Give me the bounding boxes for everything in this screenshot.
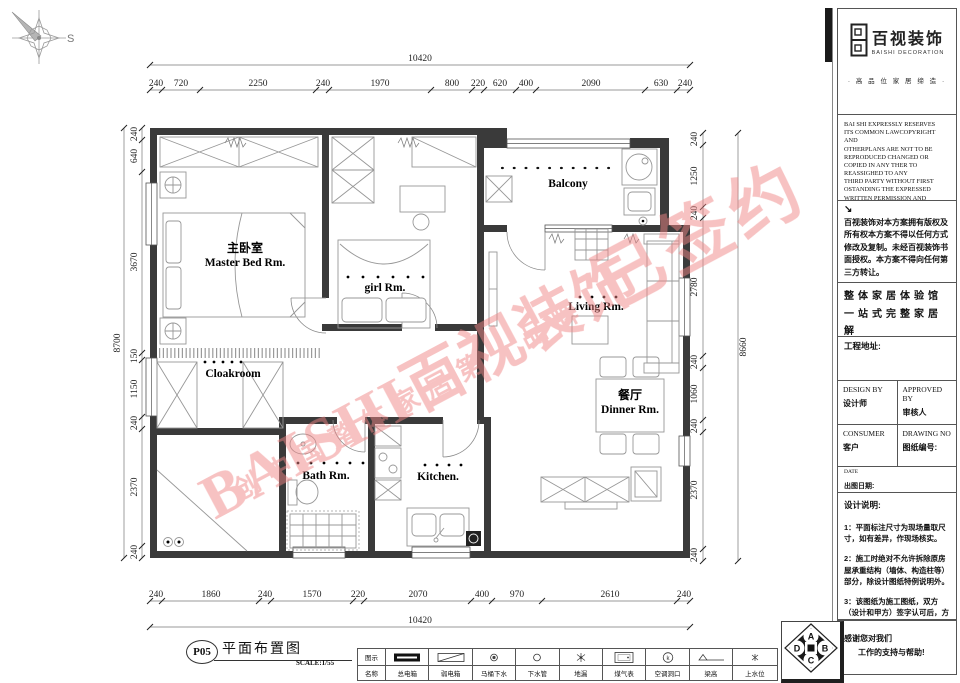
design-note-2: 2：施工时绝对不允许拆除原房屋承重结构（墙体、构造柱等）部分，除设计图纸特例说明…: [844, 553, 950, 587]
company-name-en: BAISHI DECORATION: [872, 50, 945, 56]
approved-by-label-en: APPROVED BY: [903, 385, 952, 403]
dim-label: 240: [677, 590, 692, 600]
dim-label: 1060: [690, 384, 700, 403]
diamond-letter-d: D: [794, 644, 801, 654]
dim-label: 240: [690, 419, 700, 434]
svg-text:k: k: [666, 656, 670, 662]
floor-drain-icon: [560, 649, 603, 666]
dim-label: 240: [690, 355, 700, 370]
approved-by-cell: APPROVED BY 审核人: [897, 381, 957, 424]
title-block: 百视装饰 BAISHI DECORATION · 高 品 位 家 居 缔 造 ·…: [837, 8, 957, 675]
dim-label: 220: [351, 590, 366, 600]
dim-label: 150: [130, 349, 140, 364]
dim-label: 8700: [113, 333, 123, 352]
date-label-zh: 出图日期:: [844, 483, 874, 490]
compass-rose-icon: S: [12, 10, 74, 64]
floor-plan-drawing: S 10420 240 720 2250 240 1970 800 220 62…: [0, 0, 836, 648]
dim-label: 1970: [371, 79, 390, 89]
approved-by-label-zh: 审核人: [903, 407, 952, 418]
legend-table: 图示 k 名称 总电箱 弱电箱 马桶下水 下水管 地漏 煤气表 空调洞口 梁高 …: [357, 648, 778, 681]
diamond-letter-a: A: [808, 632, 815, 642]
dim-label: 1860: [202, 590, 221, 600]
legend-name: 煤气表: [603, 666, 646, 680]
signed-watermark: BAISHI百视装饰 已签约 创中国整体家居第一品牌: [189, 148, 819, 532]
consumer-label-zh: 客户: [843, 442, 892, 453]
design-approved-row: DESIGN BY 设计师 APPROVED BY 审核人: [838, 381, 956, 425]
design-note-3: 3：该图纸为施工图纸，双方（设计和甲方）签字认可后，方可作为施工依据。: [844, 596, 950, 620]
dim-label: 970: [510, 590, 525, 600]
diamond-letter-c: C: [808, 656, 815, 666]
dim-label: 240: [130, 416, 140, 431]
copyright-notice-zh: ↘ 百视装饰对本方案拥有版权及所有权本方案不得以任何方式修改及复制。未经百视装饰…: [838, 201, 956, 283]
date-label-en: DATE: [844, 469, 950, 475]
dim-label: 240: [690, 132, 700, 147]
panel-divider-line: [832, 8, 833, 675]
dim-label: 10420: [408, 616, 432, 626]
dim-label: 640: [130, 149, 140, 164]
legend-name: 马桶下水: [473, 666, 516, 680]
thanks-line-2: 工作的支持与帮助!: [858, 647, 950, 658]
room-label-balcony: Balcony: [548, 178, 588, 190]
dim-label: 400: [519, 79, 534, 89]
main-power-box-icon: [386, 649, 429, 666]
quality-diamond-mark: A B C D: [781, 621, 844, 683]
sheet-title: 平面布置图: [214, 638, 352, 658]
copyright-notice-en: BAI SHI EXPRESSLY RESERVES ITS COMMON LA…: [838, 115, 956, 201]
dim-label: 630: [654, 79, 669, 89]
design-note-1: 1：平面标注尺寸为现场量取尺寸，如有差异，作现场核实。: [844, 522, 950, 545]
dim-label: 2370: [690, 480, 700, 499]
dim-label: 800: [445, 79, 460, 89]
company-slogan: 整体家居体验馆 一站式完整家居解 决方案: [838, 283, 956, 337]
dim-label: 2370: [130, 477, 140, 496]
toilet-drain-icon: [473, 649, 516, 666]
company-logo-block: 百视装饰 BAISHI DECORATION · 高 品 位 家 居 缔 造 ·: [838, 9, 956, 115]
room-label-kitchen: Kitchen.: [417, 471, 459, 483]
design-by-label-en: DESIGN BY: [843, 385, 892, 394]
dim-label: 2090: [582, 79, 601, 89]
design-by-cell: DESIGN BY 设计师: [838, 381, 897, 424]
ac-hole-icon: k: [646, 649, 689, 666]
room-label-master-zh: 主卧室: [227, 240, 263, 255]
legend-name: 弱电箱: [429, 666, 472, 680]
thanks-line-1: 感谢您对我们: [844, 633, 950, 644]
sheet-scale: SCALE:1/55: [296, 659, 334, 667]
baishi-logo-icon: [850, 23, 868, 57]
dim-label: 10420: [408, 54, 432, 64]
drain-pipe-icon: [516, 649, 559, 666]
dim-label: 240: [316, 79, 331, 89]
water-supply-icon: [733, 649, 776, 666]
legend-name: 空调洞口: [646, 666, 689, 680]
room-label-dinner-zh: 餐厅: [618, 387, 642, 402]
beam-height-icon: [690, 649, 733, 666]
legend-name: 梁高: [690, 666, 733, 680]
drawing-no-label-zh: 图纸编号:: [903, 442, 952, 453]
legend-header-icon: 图示: [358, 649, 386, 666]
consumer-label-en: CONSUMER: [843, 429, 892, 438]
dim-label: 240: [690, 548, 700, 563]
company-tagline: · 高 品 位 家 居 缔 造 ·: [844, 75, 950, 85]
drawing-no-label-en: DRAWING NO: [903, 429, 952, 438]
dim-label: 240: [149, 590, 164, 600]
room-label-master-en: Master Bed Rm.: [205, 257, 286, 269]
room-label-cloakroom: Cloakroom: [205, 368, 261, 380]
dim-label: 3670: [130, 252, 140, 271]
dim-label: 720: [174, 79, 189, 89]
dim-label: 400: [475, 590, 490, 600]
dim-label: 240: [130, 127, 140, 142]
dim-label: 2250: [249, 79, 268, 89]
dim-label: 1250: [690, 166, 700, 185]
room-label-dinner-en: Dinner Rm.: [601, 404, 659, 416]
legend-name: 下水管: [516, 666, 559, 680]
date-row: DATE 出图日期:: [838, 467, 956, 493]
dim-label: 240: [258, 590, 273, 600]
dim-label: 8660: [739, 337, 749, 356]
corner-mark: [825, 8, 832, 62]
dim-label: 620: [493, 79, 508, 89]
dim-label: 240: [149, 79, 164, 89]
thanks-note: 感谢您对我们 工作的支持与帮助!: [838, 620, 956, 674]
dim-label: 1150: [130, 379, 140, 398]
copyright-zh-text: 百视装饰对本方案拥有版权及所有权本方案不得以任何方式修改及复制。未经百视装饰书面…: [844, 217, 950, 279]
drawing-no-cell: DRAWING NO 图纸编号:: [897, 425, 957, 466]
low-voltage-box-icon: [429, 649, 472, 666]
dim-label: 2610: [601, 590, 620, 600]
design-notes-title: 设计说明:: [844, 499, 950, 512]
legend-name: 地漏: [560, 666, 603, 680]
arrow-icon: ↘: [844, 205, 950, 215]
design-notes: 设计说明: 1：平面标注尺寸为现场量取尺寸，如有差异，作现场核实。 2：施工时绝…: [838, 493, 956, 620]
legend-name: 上水位: [733, 666, 776, 680]
room-label-girl: girl Rm.: [365, 282, 406, 294]
dim-label: 1570: [303, 590, 322, 600]
company-name-zh: 百视装饰: [872, 25, 945, 49]
watermark-sub: 创中国整体家居第一品牌: [228, 293, 593, 506]
legend-name: 总电箱: [386, 666, 429, 680]
consumer-drawing-row: CONSUMER 客户 DRAWING NO 图纸编号:: [838, 425, 956, 467]
compass-south-label: S: [67, 33, 74, 45]
consumer-cell: CONSUMER 客户: [838, 425, 897, 466]
design-by-label-zh: 设计师: [843, 398, 892, 409]
dim-label: 2070: [409, 590, 428, 600]
gas-meter-icon: [603, 649, 646, 666]
dim-label: 240: [130, 545, 140, 560]
dim-label: 220: [471, 79, 486, 89]
diamond-letter-b: B: [822, 644, 829, 654]
legend-header-name: 名称: [358, 666, 386, 680]
dim-label: 240: [678, 79, 693, 89]
project-address-label: 工程地址:: [838, 337, 956, 381]
